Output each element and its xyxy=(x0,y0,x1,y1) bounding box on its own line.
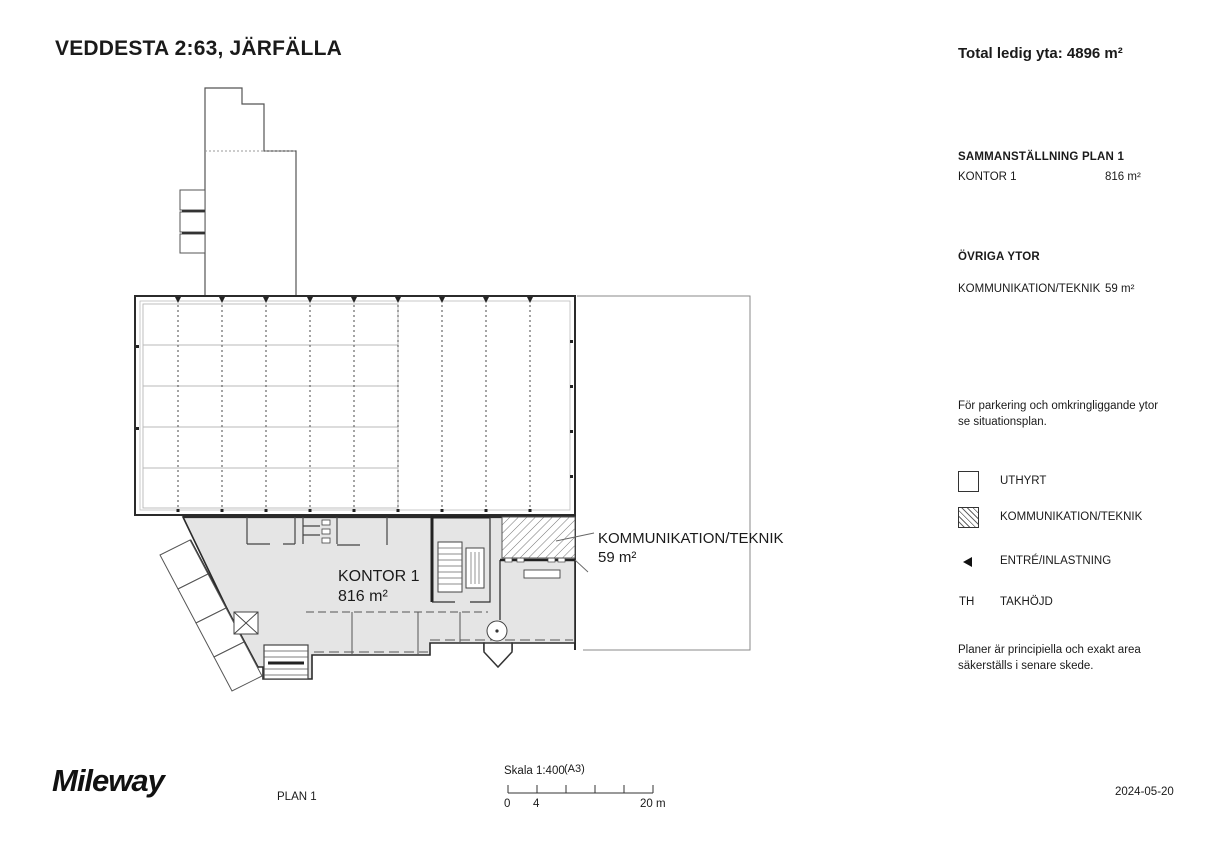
scale-tick-4: 4 xyxy=(533,798,539,810)
summary-row: KONTOR 1 816 m² xyxy=(958,171,1163,183)
uthyrt-swatch-icon xyxy=(958,471,979,492)
scale-tick-20m: 20 m xyxy=(640,798,666,810)
other-row-value: 59 m² xyxy=(1105,283,1134,295)
site-boundary xyxy=(577,296,750,650)
loading-docks xyxy=(180,190,205,253)
legend-label-komm: KOMMUNIKATION/TEKNIK xyxy=(1000,511,1142,523)
summary-heading: SAMMANSTÄLLNING PLAN 1 xyxy=(958,151,1124,163)
legend-label-takhojd: TAKHÖJD xyxy=(1000,596,1053,608)
plan-komm-area: 59 m² xyxy=(598,549,636,566)
stair xyxy=(264,645,308,679)
hatch-swatch-icon xyxy=(958,507,979,528)
paper-size-label: (A3) xyxy=(564,763,585,775)
other-row: KOMMUNIKATION/TEKNIK 59 m² xyxy=(958,283,1163,295)
page-title: VEDDESTA 2:63, JÄRFÄLLA xyxy=(55,37,342,61)
tower-outline xyxy=(205,88,296,296)
disclaimer-note: Planer är principiella och exakt area sä… xyxy=(958,642,1168,674)
scale-tick-0: 0 xyxy=(504,798,510,810)
other-row-label: KOMMUNIKATION/TEKNIK xyxy=(958,283,1100,295)
legend-label-uthyrt: UTHYRT xyxy=(1000,475,1046,487)
komm-teknik-area xyxy=(502,517,575,558)
total-area-label: Total ledig yta: 4896 m² xyxy=(958,45,1123,62)
legend-label-entre: ENTRÉ/INLASTNING xyxy=(1000,555,1111,567)
main-hall xyxy=(135,296,575,515)
entry-arrow-icon xyxy=(963,557,972,567)
plan-name: PLAN 1 xyxy=(277,791,317,803)
parking-note: För parkering och omkringliggande ytor s… xyxy=(958,398,1168,430)
shaft-x xyxy=(234,612,258,634)
scale-label: Skala 1:400 xyxy=(504,765,565,777)
scale-bar xyxy=(506,784,658,796)
date-label: 2024-05-20 xyxy=(1115,786,1174,798)
summary-row-value: 816 m² xyxy=(1105,171,1141,183)
th-abbreviation: TH xyxy=(959,596,974,608)
other-heading: ÖVRIGA YTOR xyxy=(958,251,1040,263)
plan-kontor-area: 816 m² xyxy=(338,588,388,605)
mileway-logo: Mileway xyxy=(52,763,164,799)
summary-row-label: KONTOR 1 xyxy=(958,171,1017,183)
plan-kontor-label: KONTOR 1 xyxy=(338,568,420,585)
plan-komm-label: KOMMUNIKATION/TEKNIK xyxy=(598,530,784,547)
